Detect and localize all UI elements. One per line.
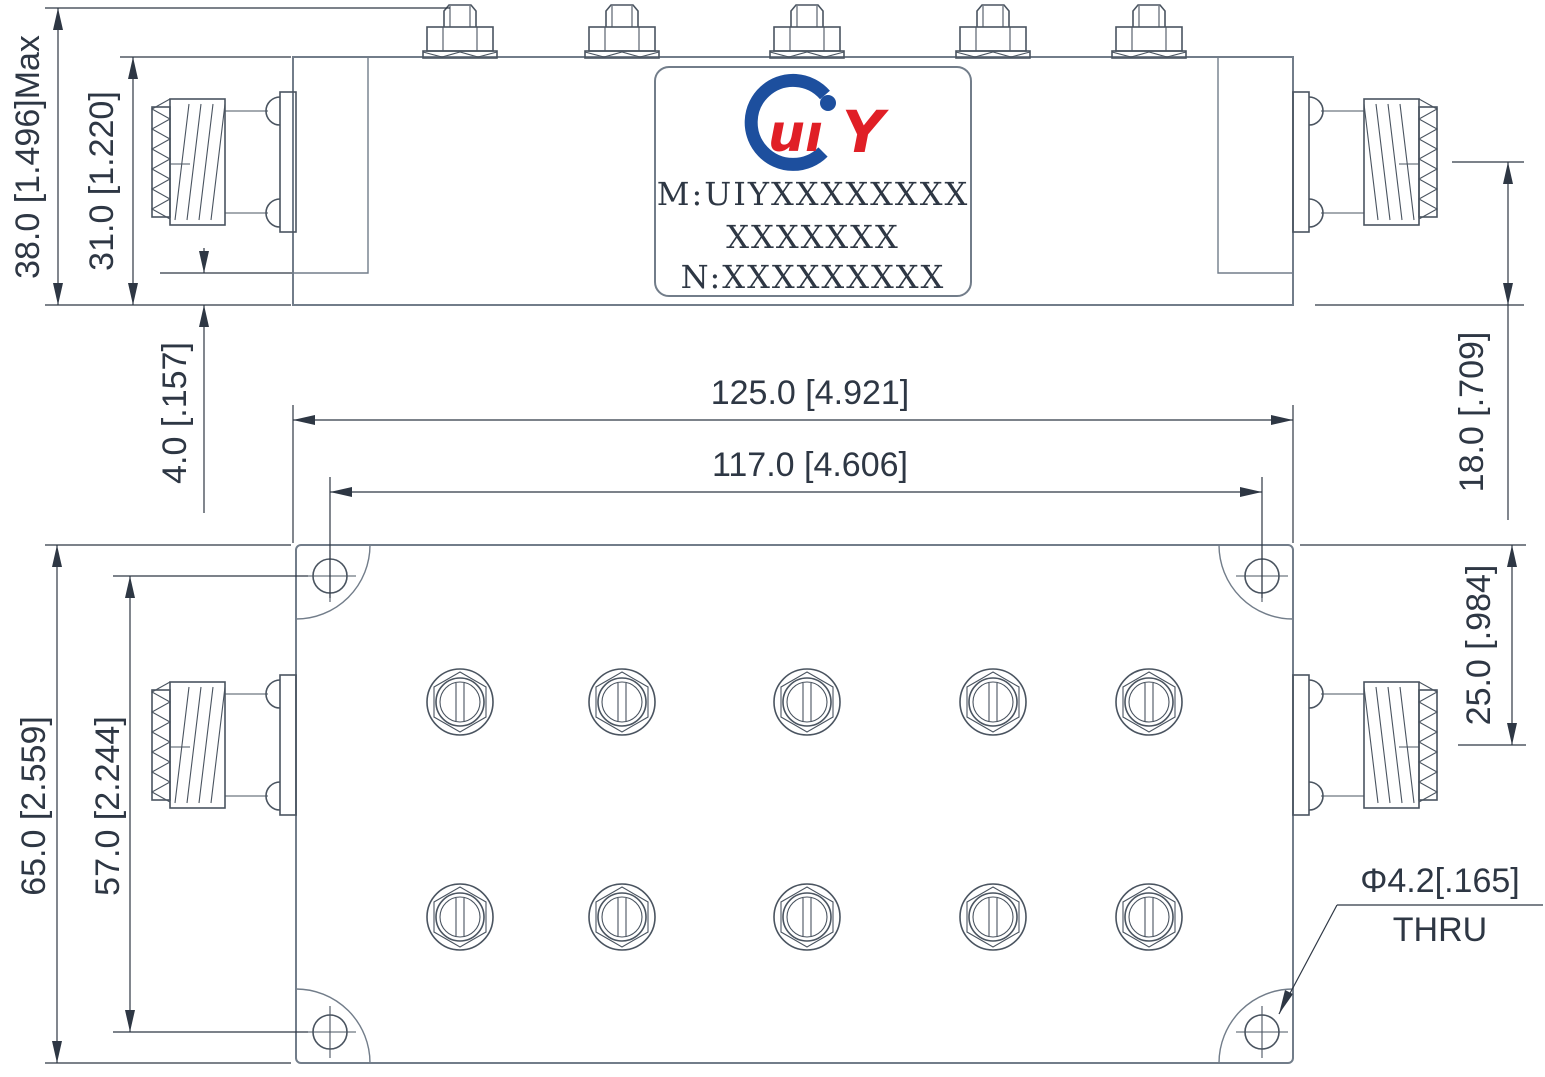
arrowhead — [1503, 283, 1513, 305]
dimension-overall-width: 65.0 [2.559] — [15, 545, 291, 1063]
logo-ui-text: uı — [768, 104, 823, 164]
arrowhead — [125, 1010, 135, 1032]
cover-corner-notch — [1219, 989, 1293, 1063]
n-connector-left-plan — [152, 675, 296, 815]
label-model-line2: XXXXXXX — [726, 218, 899, 256]
extension-line — [330, 477, 1262, 598]
right-end-block — [1218, 57, 1293, 273]
dimension-overall-height: 38.0 [1.496]Max — [9, 8, 450, 305]
tuning-screw-plan — [589, 669, 655, 735]
tuning-screw-top — [1112, 5, 1186, 58]
n-connector-left — [152, 92, 296, 232]
dim-text-connector-axis-to-base: 18.0 [.709] — [1453, 332, 1491, 493]
leader-arrowhead — [1279, 990, 1293, 1014]
tuning-screw-top — [585, 5, 659, 58]
tuning-screw-plan — [1116, 884, 1182, 950]
tuning-screw-plan — [774, 884, 840, 950]
arrowhead — [1507, 723, 1517, 745]
filter-outline-drawing: uı Y M:UIYXXXXXXXX XXXXXXX N:XXXXXXXXX — [0, 0, 1545, 1077]
arrowhead — [125, 576, 135, 598]
hole-callout: Φ4.2[.165] THRU — [1279, 862, 1543, 1014]
dim-text-body-height: 31.0 [1.220] — [83, 91, 121, 271]
tuning-screw-plan — [427, 884, 493, 950]
extension-line — [45, 545, 291, 1063]
tuning-screw-plan — [960, 884, 1026, 950]
hole-diameter-text: Φ4.2[.165] — [1360, 862, 1519, 900]
dim-text-mount-hole-spacing-length: 117.0 [4.606] — [712, 446, 908, 484]
dimension-mount-hole-spacing-length: 117.0 [4.606] — [330, 446, 1262, 598]
arrowhead — [1240, 487, 1262, 497]
plan-view-body — [296, 545, 1293, 1063]
tuning-screw-plan — [589, 884, 655, 950]
label-serial-line: N:XXXXXXXXX — [681, 258, 946, 296]
label-model-line: M:UIYXXXXXXXX — [657, 175, 970, 213]
dim-text-overall-width: 65.0 [2.559] — [15, 716, 53, 896]
logo-y-text: Y — [842, 98, 889, 166]
arrowhead — [1271, 415, 1293, 425]
uiy-logo: uı Y — [751, 80, 889, 166]
product-label: uı Y M:UIYXXXXXXXX XXXXXXX N:XXXXXXXXX — [655, 67, 971, 296]
dim-text-end-block-offset: 4.0 [.157] — [156, 342, 194, 484]
mounting-hole-bottom-left — [304, 1006, 356, 1058]
arrowhead — [128, 283, 138, 305]
arrowhead — [52, 545, 62, 567]
dimension-mount-hole-spacing-width: 57.0 [2.244] — [89, 576, 308, 1032]
tuning-screw-top — [423, 5, 497, 58]
arrowhead — [53, 8, 63, 30]
tuning-screw-top — [956, 5, 1030, 58]
arrowhead — [53, 283, 63, 305]
hole-thru-text: THRU — [1393, 911, 1487, 949]
dim-text-mount-hole-spacing-width: 57.0 [2.244] — [89, 716, 127, 896]
arrowhead — [1503, 162, 1513, 184]
dim-text-overall-length: 125.0 [4.921] — [711, 374, 910, 412]
arrowhead — [293, 415, 315, 425]
arrowhead — [128, 57, 138, 79]
arrowhead — [52, 1041, 62, 1063]
arrowhead — [1507, 545, 1517, 567]
dim-text-overall-height: 38.0 [1.496]Max — [9, 35, 47, 279]
mounting-hole-bottom-right — [1236, 1006, 1288, 1058]
n-connector-right-plan — [1293, 675, 1437, 815]
cover-corner-notch — [296, 545, 370, 619]
arrowhead — [199, 305, 209, 327]
dimension-body-height: 31.0 [1.220] — [83, 57, 291, 305]
dimension-end-block-offset: 4.0 [.157] — [156, 248, 292, 513]
arrowhead — [330, 487, 352, 497]
tuning-screw-top — [770, 5, 844, 58]
n-connector-right — [1293, 92, 1437, 232]
tuning-screw-plan — [1116, 669, 1182, 735]
dimension-connector-axis-to-edge: 25.0 [.984] — [1300, 545, 1526, 745]
tuning-screw-plan — [427, 669, 493, 735]
plan-view — [152, 545, 1437, 1063]
technical-drawing-canvas: uı Y M:UIYXXXXXXXX XXXXXXX N:XXXXXXXXX — [0, 0, 1545, 1077]
arrowhead — [199, 251, 209, 273]
side-view: uı Y M:UIYXXXXXXXX XXXXXXX N:XXXXXXXXX — [152, 5, 1437, 305]
tuning-screw-plan — [960, 669, 1026, 735]
extension-line — [113, 576, 308, 1032]
left-end-block — [293, 57, 368, 273]
cover-corner-notch — [296, 989, 370, 1063]
cover-corner-notch — [1219, 545, 1293, 619]
tuning-screw-plan — [774, 669, 840, 735]
logo-i-dot-icon — [820, 95, 836, 111]
dim-text-connector-axis-to-edge: 25.0 [.984] — [1460, 565, 1498, 726]
